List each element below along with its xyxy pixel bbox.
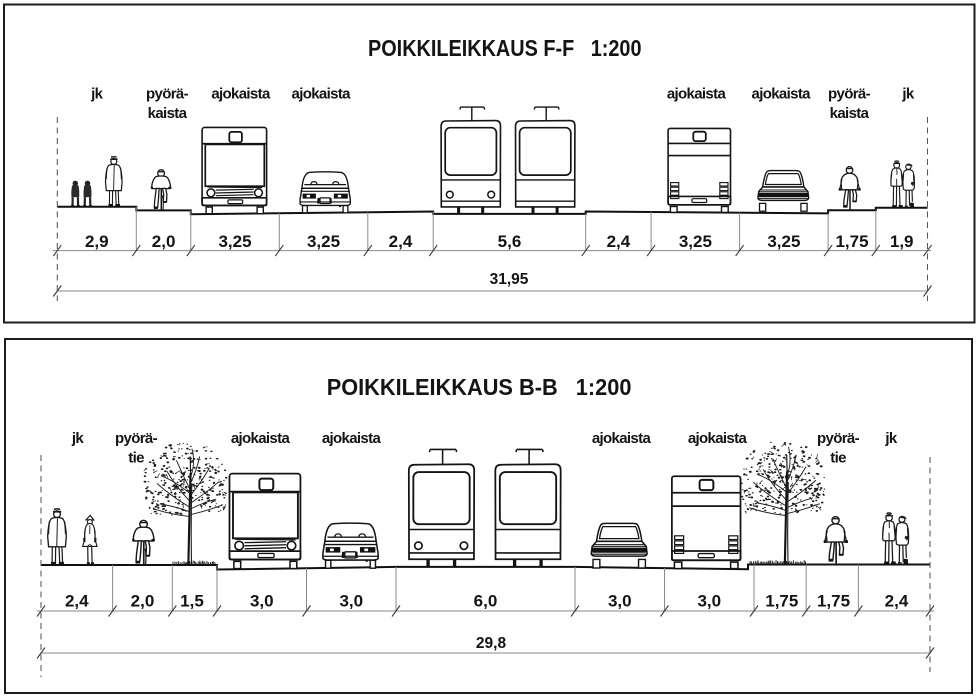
svg-text:jk: jk [90,86,104,103]
svg-text:ajokaista: ajokaista [211,86,271,103]
svg-text:2,0: 2,0 [131,592,155,611]
svg-text:31,95: 31,95 [490,271,529,288]
svg-text:2,4: 2,4 [65,592,89,611]
svg-text:2,0: 2,0 [152,232,176,251]
svg-text:3,0: 3,0 [250,592,274,611]
svg-text:tie: tie [830,450,846,467]
svg-text:1,75: 1,75 [765,592,798,611]
svg-text:POIKKILEIKKAUS B-B 1:200: POIKKILEIKKAUS B-B 1:200 [327,374,632,400]
svg-text:kaista: kaista [830,105,870,122]
svg-text:pyörä-: pyörä- [115,430,158,447]
svg-text:ajokaista: ajokaista [688,430,748,447]
svg-text:3,0: 3,0 [339,592,363,611]
svg-text:3,25: 3,25 [307,232,340,251]
svg-text:2,4: 2,4 [389,232,413,251]
svg-text:6,0: 6,0 [474,592,498,611]
svg-text:pyörä-: pyörä- [828,86,871,103]
svg-text:3,25: 3,25 [218,232,251,251]
svg-text:2,9: 2,9 [85,232,109,251]
svg-text:3,0: 3,0 [697,592,721,611]
svg-text:jk: jk [884,430,898,447]
svg-text:ajokaista: ajokaista [667,86,727,103]
svg-text:kaista: kaista [148,105,188,122]
svg-text:pyörä-: pyörä- [146,86,189,103]
svg-text:29,8: 29,8 [476,635,507,652]
svg-text:3,0: 3,0 [608,592,632,611]
svg-text:2,4: 2,4 [607,232,631,251]
svg-text:1,75: 1,75 [835,232,868,251]
svg-text:1,9: 1,9 [890,232,914,251]
svg-text:POIKKILEIKKAUS F-F 1:200: POIKKILEIKKAUS F-F 1:200 [368,35,642,61]
svg-text:tie: tie [128,450,144,467]
svg-text:ajokaista: ajokaista [322,430,382,447]
svg-text:jk: jk [71,430,85,447]
svg-text:3,25: 3,25 [767,232,800,251]
svg-text:2,4: 2,4 [885,592,909,611]
svg-text:3,25: 3,25 [679,232,712,251]
svg-text:ajokaista: ajokaista [752,86,812,103]
svg-text:5,6: 5,6 [498,232,522,251]
svg-text:jk: jk [901,86,915,103]
svg-text:1,5: 1,5 [180,592,204,611]
svg-text:1,75: 1,75 [817,592,850,611]
svg-text:ajokaista: ajokaista [292,86,352,103]
svg-text:pyörä-: pyörä- [817,430,860,447]
svg-text:ajokaista: ajokaista [592,430,652,447]
svg-text:ajokaista: ajokaista [231,430,291,447]
